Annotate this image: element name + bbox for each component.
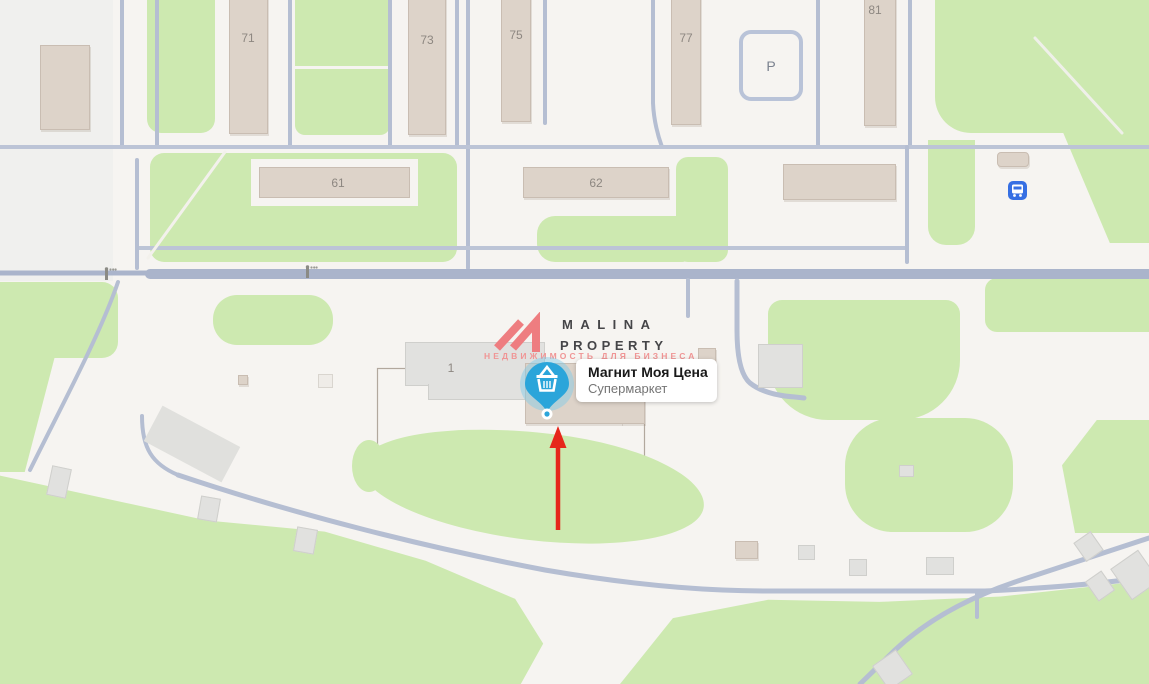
building-71 <box>229 0 268 134</box>
building-unlabeled <box>783 164 896 200</box>
building-label-75: 75 <box>509 28 522 42</box>
shed <box>899 465 914 477</box>
building-label-71: 71 <box>241 31 254 45</box>
watermark-brand-line1: MALINA <box>562 317 658 332</box>
poi-pin[interactable] <box>513 351 583 423</box>
shed <box>849 559 867 576</box>
building-73 <box>408 0 446 135</box>
poi-title: Магнит Моя Цена <box>588 363 717 381</box>
poi-card[interactable]: Магнит Моя Цена Супермаркет <box>576 359 717 402</box>
building-unlabeled <box>40 45 90 130</box>
shed <box>798 545 815 560</box>
shed <box>197 495 221 522</box>
building-label-73: 73 <box>420 33 433 47</box>
gate-icon[interactable] <box>302 264 318 279</box>
building-label-1: 1 <box>448 361 455 375</box>
building-label-81: 81 <box>868 3 881 17</box>
building-label-61: 61 <box>331 176 344 190</box>
map-canvas[interactable]: 71 73 75 77 81 61 62 1 P MALINA PROPERTY… <box>0 0 1149 684</box>
pointer-arrow <box>540 420 576 535</box>
shed <box>926 557 954 575</box>
building-small <box>758 344 803 388</box>
building-label-62: 62 <box>589 176 602 190</box>
building-label-77: 77 <box>679 31 692 45</box>
building-small <box>997 152 1029 167</box>
building-small <box>318 374 333 388</box>
building-small <box>238 375 248 385</box>
building-77 <box>671 0 701 125</box>
shed <box>293 526 318 554</box>
poi-subtitle: Супермаркет <box>588 381 717 397</box>
parking-label: P <box>766 58 775 74</box>
building-81 <box>864 0 896 126</box>
building-75 <box>501 0 531 122</box>
shed <box>735 541 758 559</box>
malina-logo-icon <box>490 312 550 354</box>
gate-icon[interactable] <box>101 266 117 281</box>
bus-stop-icon[interactable] <box>1008 181 1027 200</box>
